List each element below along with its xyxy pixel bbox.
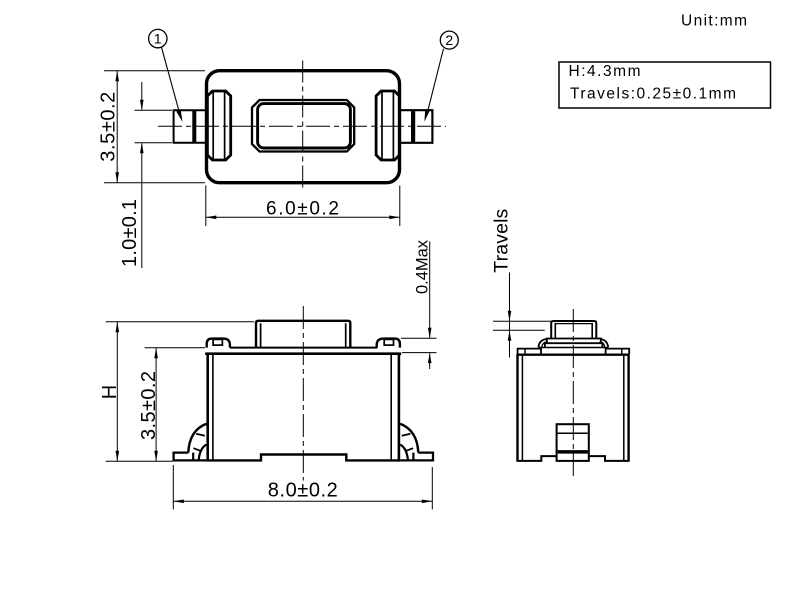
svg-text:Travels: Travels xyxy=(490,208,512,272)
svg-text:H:4.3mm: H:4.3mm xyxy=(569,63,641,80)
svg-text:H: H xyxy=(99,385,121,399)
svg-text:1.0±0.1: 1.0±0.1 xyxy=(119,199,141,267)
svg-text:0.4Max: 0.4Max xyxy=(414,239,432,294)
svg-text:8.0±0.2: 8.0±0.2 xyxy=(268,479,338,501)
svg-text:Unit:mm: Unit:mm xyxy=(681,13,747,30)
svg-text:Travels:0.25±0.1mm: Travels:0.25±0.1mm xyxy=(570,86,736,103)
svg-text:3.5±0.2: 3.5±0.2 xyxy=(98,92,120,162)
svg-text:2: 2 xyxy=(445,32,453,48)
svg-text:3.5±0.2: 3.5±0.2 xyxy=(138,371,160,440)
svg-text:1: 1 xyxy=(154,31,162,47)
